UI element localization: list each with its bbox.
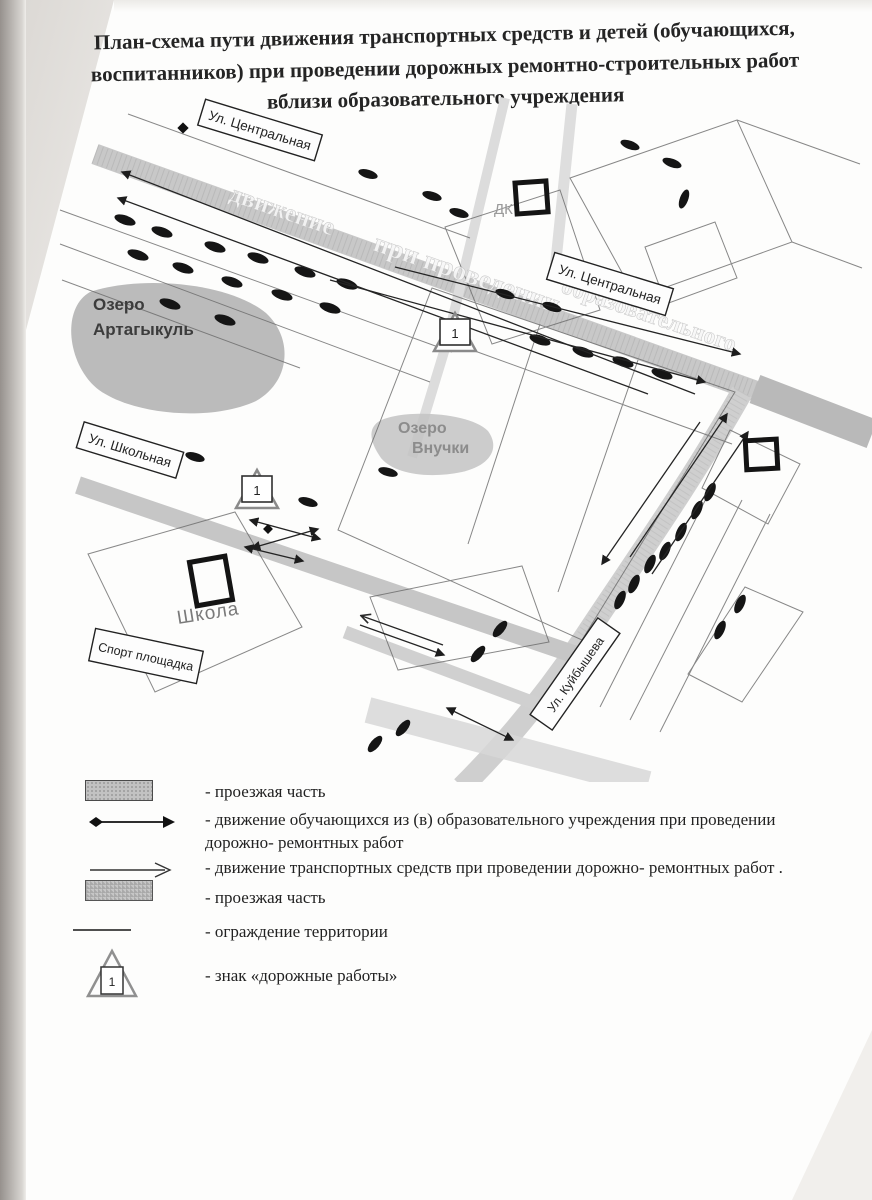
street-label-school: Ул. Школьная [76, 422, 183, 478]
road-school [78, 485, 585, 658]
street-label-central-top: Ул. Центральная [198, 99, 323, 160]
label-sport-ground: Спорт площадка [89, 628, 203, 683]
sign-number: 1 [253, 483, 260, 498]
legend-label: - проезжая часть [205, 880, 817, 909]
fence-line-icon [73, 929, 131, 931]
roadworks-sign-1: 1 [434, 313, 476, 351]
legend-symbol [73, 920, 205, 931]
parcel-line [737, 120, 860, 164]
legend-label: - движение обучающихся из (в) образовате… [205, 808, 817, 855]
legend-label: - ограждение территории [205, 920, 817, 943]
legend-item-roadway-2: - проезжая часть [85, 880, 817, 909]
school-building [189, 556, 232, 606]
car-icon [712, 619, 728, 641]
car-icon [448, 206, 470, 220]
legend-item-roadworks-sign: 1 - знак «дорожные работы» [85, 948, 817, 1005]
legend-label: - знак «дорожные работы» [205, 948, 817, 987]
roadworks-sign-icon: 1 [85, 948, 139, 1000]
legend-label: - проезжая часть [205, 780, 817, 803]
legend-symbol [85, 856, 205, 885]
parcel-line [660, 514, 770, 732]
lake-artagykul-label-2: Артагыкуль [93, 320, 194, 339]
scan-shadow-bottomright [792, 1030, 872, 1200]
legend-symbol: 1 [85, 948, 205, 1005]
car-icon [297, 495, 319, 509]
road-strip-hatched-icon [85, 880, 153, 901]
children-arrow [250, 520, 320, 539]
car-icon [661, 156, 683, 171]
legend-symbol [85, 880, 205, 901]
dk-building [515, 181, 548, 214]
car-icon [689, 499, 705, 521]
car-icon [421, 189, 443, 203]
scan-edge-top [114, 0, 872, 12]
car-icon [171, 260, 195, 276]
car-icon [318, 300, 342, 316]
car-icon [293, 264, 317, 280]
dk-label: ДК [494, 201, 513, 218]
legend-label: - движение транспортных средств при пров… [205, 856, 817, 879]
car-icon [365, 734, 385, 755]
road-kuibyshev [462, 392, 742, 782]
car-icon [184, 450, 206, 464]
sign-number: 1 [451, 326, 458, 341]
legend-item-fence: - ограждение территории [85, 920, 817, 943]
map-canvas: движение при проведении образовательного [0, 92, 872, 782]
parcel-line [688, 587, 803, 702]
route-diamond-marker [177, 122, 188, 133]
east-building [745, 439, 777, 470]
sign-number: 1 [109, 975, 116, 989]
lake-vnuchki-label-1: Озеро [398, 420, 447, 437]
roadworks-sign-2: 1 [236, 470, 278, 508]
children-arrow-icon [85, 812, 180, 832]
car-icon [357, 167, 379, 181]
legend-item-children-route: - движение обучающихся из (в) образовате… [85, 808, 817, 855]
legend-symbol [85, 808, 205, 837]
car-icon [270, 287, 294, 303]
car-icon [220, 274, 244, 290]
vehicle-arrow-icon [85, 860, 180, 880]
road-central-east [755, 389, 872, 434]
car-icon [113, 212, 137, 228]
car-icon [619, 138, 641, 153]
car-icon [126, 247, 150, 263]
car-icon [203, 239, 227, 255]
legend-item-roadway-1: - проезжая часть [85, 780, 817, 803]
lake-artagykul-label-1: Озеро [93, 295, 145, 314]
parcel-line [792, 242, 862, 268]
buildings [189, 181, 777, 606]
car-icon [677, 188, 692, 210]
lake-vnuchki-label-2: Внучки [412, 440, 469, 457]
scanned-page: План-схема пути движения транспортных ср… [0, 0, 872, 1200]
school-label: Школа [175, 598, 240, 629]
legend-item-vehicle-route: - движение транспортных средств при пров… [85, 856, 817, 885]
road-strip-icon [85, 780, 153, 801]
car-icon [150, 224, 174, 240]
legend-symbol [85, 780, 205, 801]
